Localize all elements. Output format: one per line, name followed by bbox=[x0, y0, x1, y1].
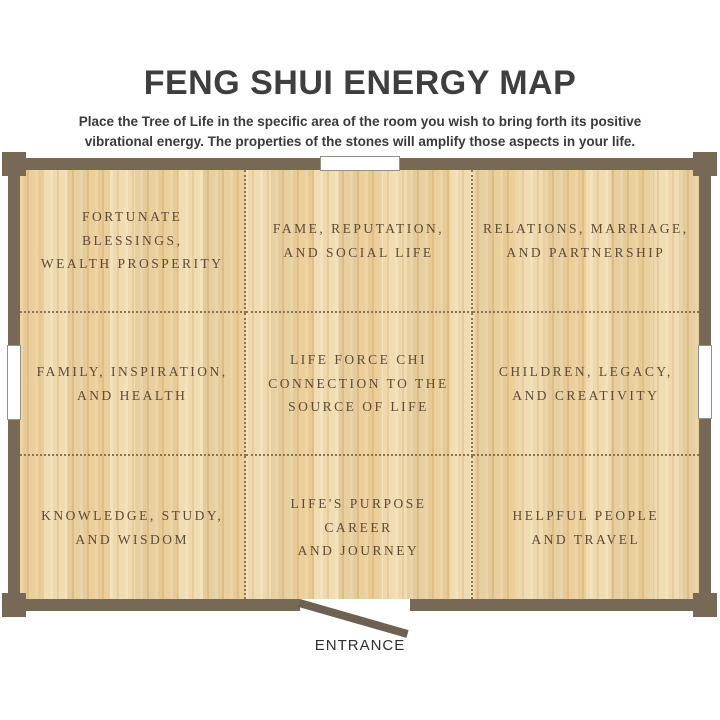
wall-corner-bottom-right bbox=[693, 593, 717, 617]
wall-bottom-right bbox=[410, 599, 711, 611]
cell-knowledge-wisdom: KNOWLEDGE, STUDY, AND WISDOM bbox=[20, 456, 246, 599]
cell-life-force-chi: LIFE FORCE CHI CONNECTION TO THE SOURCE … bbox=[246, 313, 472, 456]
wall-corner-top-right bbox=[693, 152, 717, 176]
wall-bottom-left bbox=[8, 599, 300, 611]
page-title: FENG SHUI ENERGY MAP bbox=[0, 64, 720, 103]
wall-corner-bottom-left bbox=[2, 593, 26, 617]
feng-shui-energy-map-page: FENG SHUI ENERGY MAP Place the Tree of L… bbox=[0, 0, 720, 720]
entrance-label: ENTRANCE bbox=[0, 637, 720, 654]
room-floor-plan: FORTUNATE BLESSINGS, WEALTH PROSPERITY F… bbox=[8, 158, 711, 611]
cell-helpful-people: HELPFUL PEOPLE AND TRAVEL bbox=[473, 456, 699, 599]
cell-career-journey: LIFE'S PURPOSE CAREER AND JOURNEY bbox=[246, 456, 472, 599]
wall-corner-top-left bbox=[2, 152, 26, 176]
cell-relations-marriage: RELATIONS, MARRIAGE, AND PARTNERSHIP bbox=[473, 170, 699, 313]
cell-children-creativity: CHILDREN, LEGACY, AND CREATIVITY bbox=[473, 313, 699, 456]
window-right bbox=[698, 345, 712, 419]
cell-fame-reputation: FAME, REPUTATION, AND SOCIAL LIFE bbox=[246, 170, 472, 313]
cell-wealth-prosperity: FORTUNATE BLESSINGS, WEALTH PROSPERITY bbox=[20, 170, 246, 313]
page-subtitle: Place the Tree of Life in the specific a… bbox=[74, 112, 646, 153]
cell-family-health: FAMILY, INSPIRATION, AND HEALTH bbox=[20, 313, 246, 456]
window-left bbox=[7, 345, 21, 420]
entrance-door-swing bbox=[298, 599, 409, 638]
window-top bbox=[320, 156, 400, 171]
energy-grid: FORTUNATE BLESSINGS, WEALTH PROSPERITY F… bbox=[20, 170, 699, 599]
